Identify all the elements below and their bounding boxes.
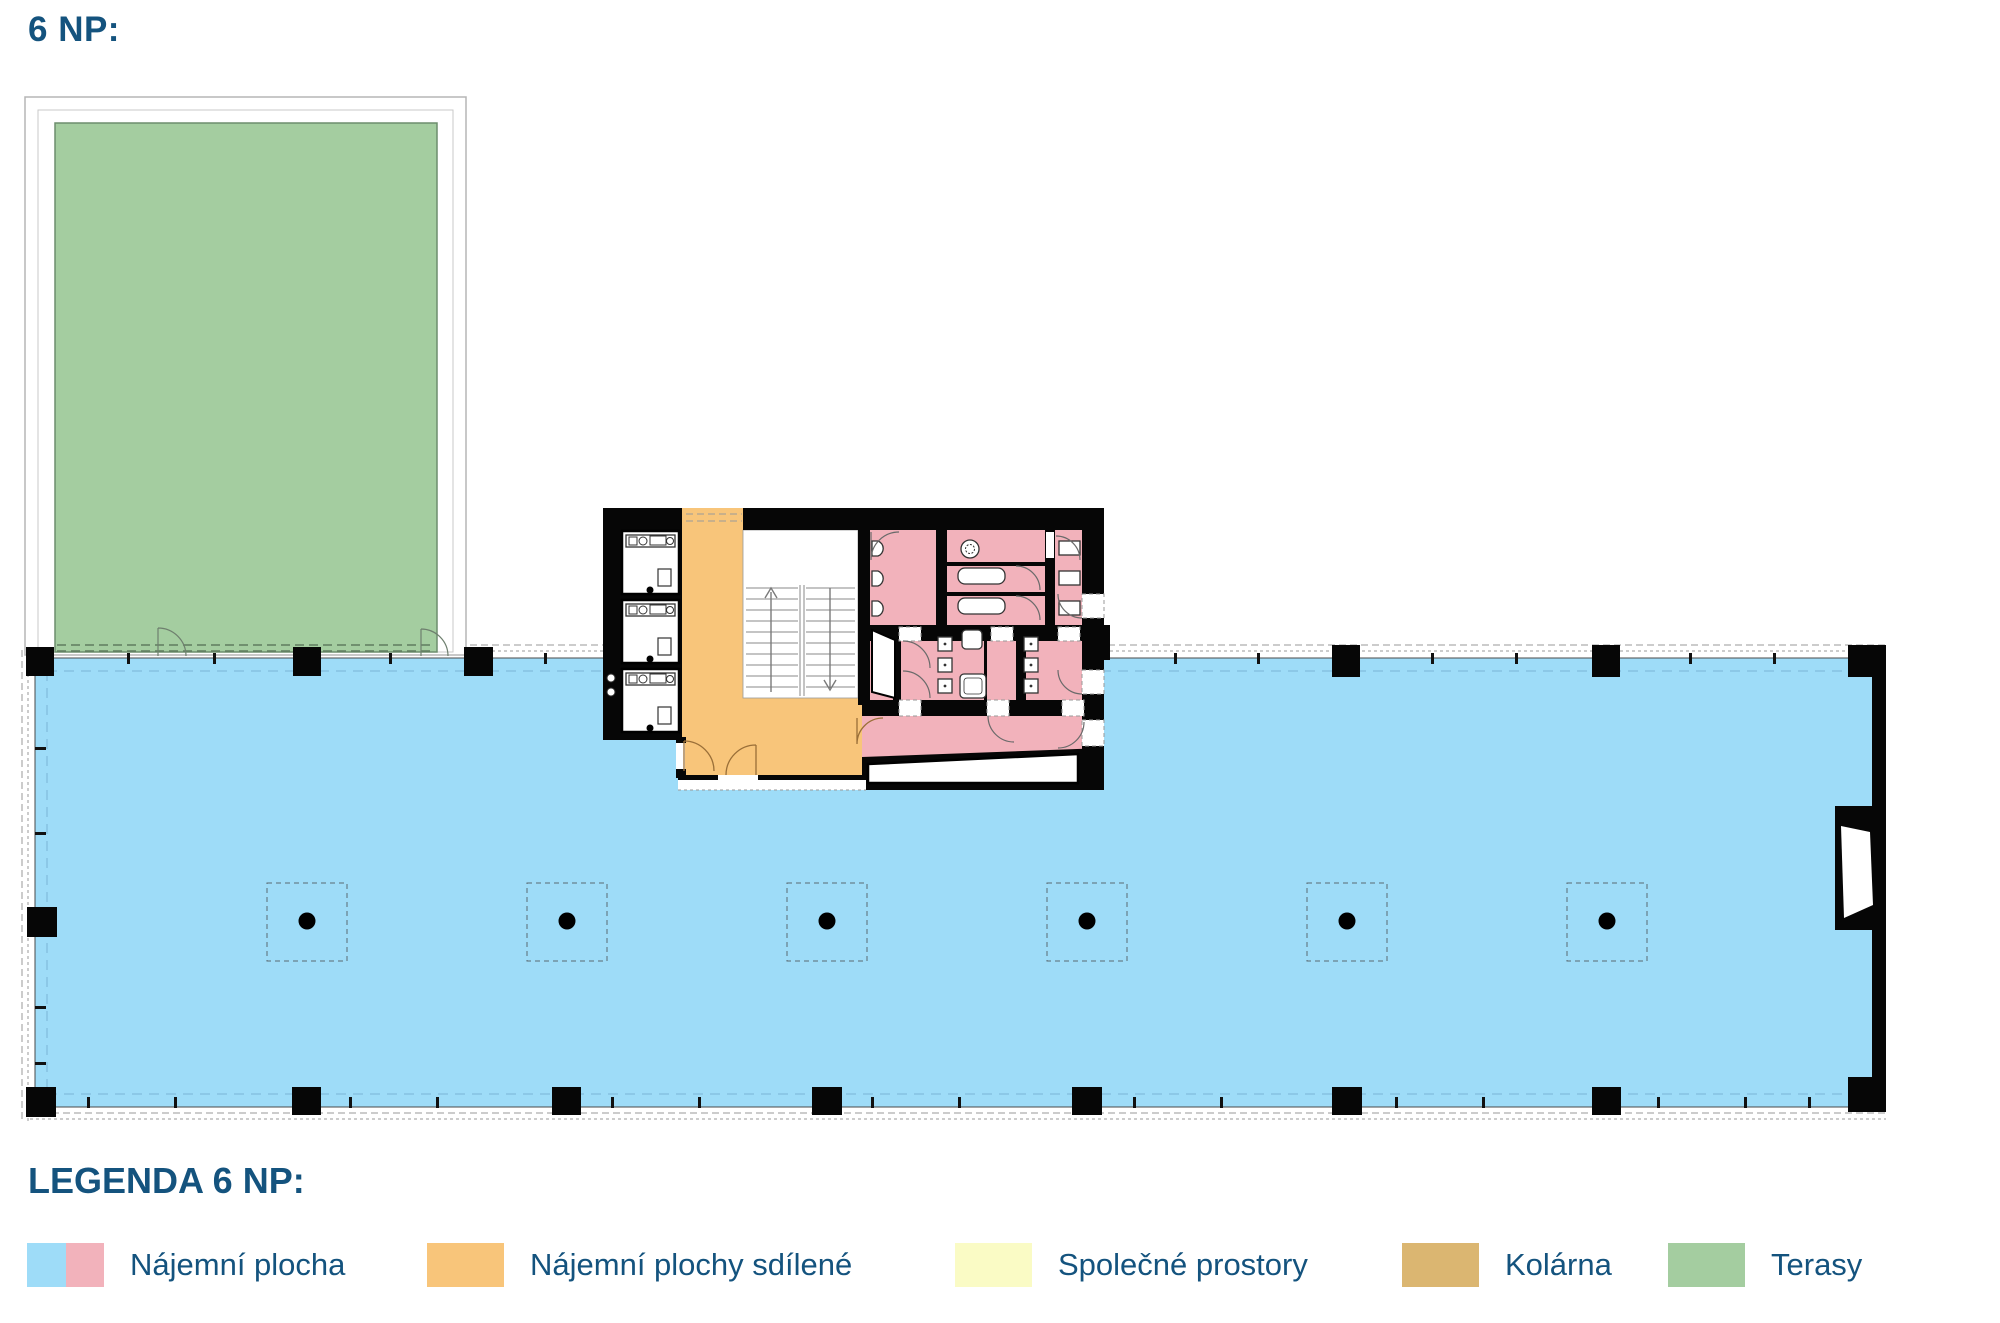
- floor-drain-icon: [961, 540, 979, 558]
- column: [552, 1087, 581, 1115]
- legend-title: LEGENDA 6 NP:: [28, 1160, 305, 1202]
- column: [1332, 1087, 1362, 1115]
- legend-swatch-blue-pink: [27, 1243, 104, 1287]
- angled-door-leaf: [872, 630, 895, 698]
- terrace-surface: [55, 123, 437, 652]
- column: [26, 1087, 56, 1117]
- column: [27, 907, 57, 937]
- column: [1072, 1087, 1102, 1115]
- legend-item-najemni-plochy-sdilene: Nájemní plochy sdílené: [427, 1243, 852, 1287]
- elevator-1: [622, 531, 679, 594]
- column: [1332, 645, 1360, 677]
- legend-item-najemni-plocha: Nájemní plocha: [27, 1243, 345, 1287]
- floor-plan: [0, 0, 2000, 1323]
- sink-row-right: [1024, 637, 1038, 693]
- swatch-color-green: [1668, 1243, 1745, 1287]
- column: [1592, 1087, 1621, 1115]
- legend-label: Nájemní plochy sdílené: [530, 1247, 852, 1283]
- column: [1592, 645, 1620, 677]
- core: [603, 508, 1110, 790]
- toilet-icon: [872, 571, 883, 586]
- swatch-color-yellow: [955, 1243, 1032, 1287]
- legend-swatch-green: [1668, 1243, 1745, 1287]
- legend-item-spolecne-prostory: Společné prostory: [955, 1243, 1308, 1287]
- sink-icon: [1059, 571, 1080, 585]
- swatch-color-tan: [1402, 1243, 1479, 1287]
- column: [464, 647, 493, 676]
- elevator-3: [622, 669, 679, 732]
- swatch-color-orange: [427, 1243, 504, 1287]
- terrace: [25, 97, 466, 656]
- toilet-icon: [872, 601, 883, 616]
- legend-swatch-yellow: [955, 1243, 1032, 1287]
- east-wall-niche: [1841, 826, 1873, 918]
- legend-label: Terasy: [1771, 1247, 1862, 1283]
- basin-icon: [962, 630, 982, 649]
- swatch-color-pink: [66, 1243, 105, 1287]
- legend-swatch-orange: [427, 1243, 504, 1287]
- stairwell: [743, 530, 858, 698]
- legend-label: Nájemní plocha: [130, 1247, 345, 1283]
- column: [293, 647, 321, 676]
- toilet-icon: [958, 568, 1005, 584]
- legend-swatch-tan: [1402, 1243, 1479, 1287]
- legend-label: Kolárna: [1505, 1247, 1612, 1283]
- column: [292, 1087, 321, 1115]
- column: [812, 1087, 842, 1115]
- legend-item-kolarna: Kolárna: [1402, 1243, 1612, 1287]
- legend-item-terasy: Terasy: [1668, 1243, 1862, 1287]
- swatch-color-blue: [27, 1243, 66, 1287]
- elevator-2: [622, 600, 679, 663]
- sink-row-left: [938, 637, 952, 693]
- toilet-icon: [958, 598, 1005, 614]
- legend-label: Společné prostory: [1058, 1247, 1308, 1283]
- column: [26, 647, 54, 676]
